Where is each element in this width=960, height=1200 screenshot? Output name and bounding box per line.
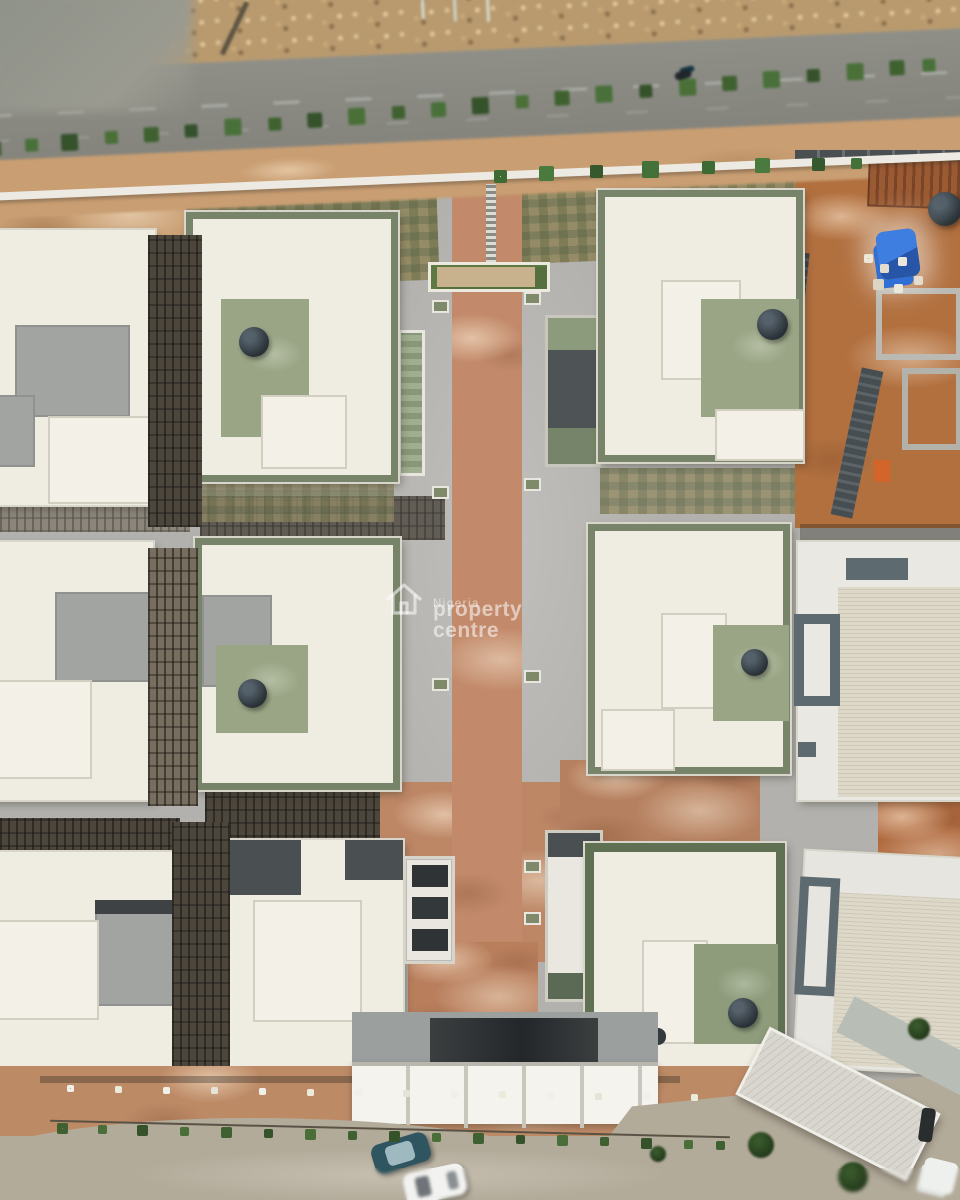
concrete-mixer [875,227,921,280]
pergola-slot [412,865,448,887]
planter-box [524,292,541,305]
villa-roof [0,230,155,505]
villa-roof [598,190,803,462]
roof-annex [0,682,90,777]
carport-row [352,1062,658,1124]
roof-annex [717,411,803,459]
ancillary-unit [398,330,425,476]
dark-roof-bar [95,900,175,914]
roof-annex [603,711,673,769]
concrete-section [95,900,175,1006]
water-tank [239,327,269,357]
metal-roof [838,587,960,797]
ancillary-unit [545,315,601,467]
watermark-brand-bottom: property centre [433,599,522,641]
dark-roof-section [345,840,403,880]
paver-patch [600,468,800,514]
wall-trim [798,742,816,757]
roadside-tree [908,1018,930,1040]
machine-orange [874,460,890,482]
fence-posts [70,1088,71,1089]
dark-roof-section [225,840,301,895]
planter-box [432,486,449,499]
roadside-tree [748,1132,774,1158]
villa-roof [588,524,790,774]
roof-annex [263,397,345,467]
water-tank [238,679,267,708]
roof-annex [0,922,97,1018]
car-roof [384,1140,417,1167]
villa-roof [186,212,398,482]
roadside-shrub [650,1146,666,1162]
planter-box [524,670,541,683]
concrete-section [55,592,151,682]
house-outline-icon [384,579,424,619]
pergola-slot [412,929,448,951]
street-pole [420,0,425,19]
planter-box [432,678,449,691]
entrance-court [430,1018,598,1064]
foundation-outline [902,368,960,450]
palm-row-inside-wall [500,176,501,177]
water-tank [741,649,768,676]
wall-trim [794,876,840,996]
water-tank-yard [928,192,960,226]
planter-box [432,300,449,313]
planter-box [524,478,541,491]
top-left-blur [0,0,192,112]
concrete-section [0,395,35,467]
carport-dividers [352,1066,658,1128]
water-tank [728,998,758,1028]
planter-box [524,860,541,873]
pergola-slot [412,897,448,919]
walkway-planter-wall [428,262,550,292]
watermark: Nigeria property centre [384,574,594,624]
paver-patch [188,482,394,522]
villa-roof [0,542,153,800]
cement-sacks [868,258,869,259]
hedge-row [62,1128,63,1129]
bottom-blur-overlay [0,1168,960,1200]
foundation-outline [876,288,960,360]
roof-annex [50,418,150,502]
villa-finished [798,542,960,800]
planter-box [524,912,541,925]
villa-finished-shadow [800,524,960,540]
scaffolding [148,548,198,806]
water-tank [757,309,788,340]
scaffolding [148,235,202,527]
green-flat-roof [694,944,778,1044]
wall-trim [846,558,908,580]
wall-trim [794,614,840,706]
pergola-slots [403,856,455,964]
villa-roof [195,538,400,790]
aerial-photo: Nigeria property centre [0,0,960,1200]
walkway-drain [486,184,496,266]
roof-annex [255,902,360,1020]
